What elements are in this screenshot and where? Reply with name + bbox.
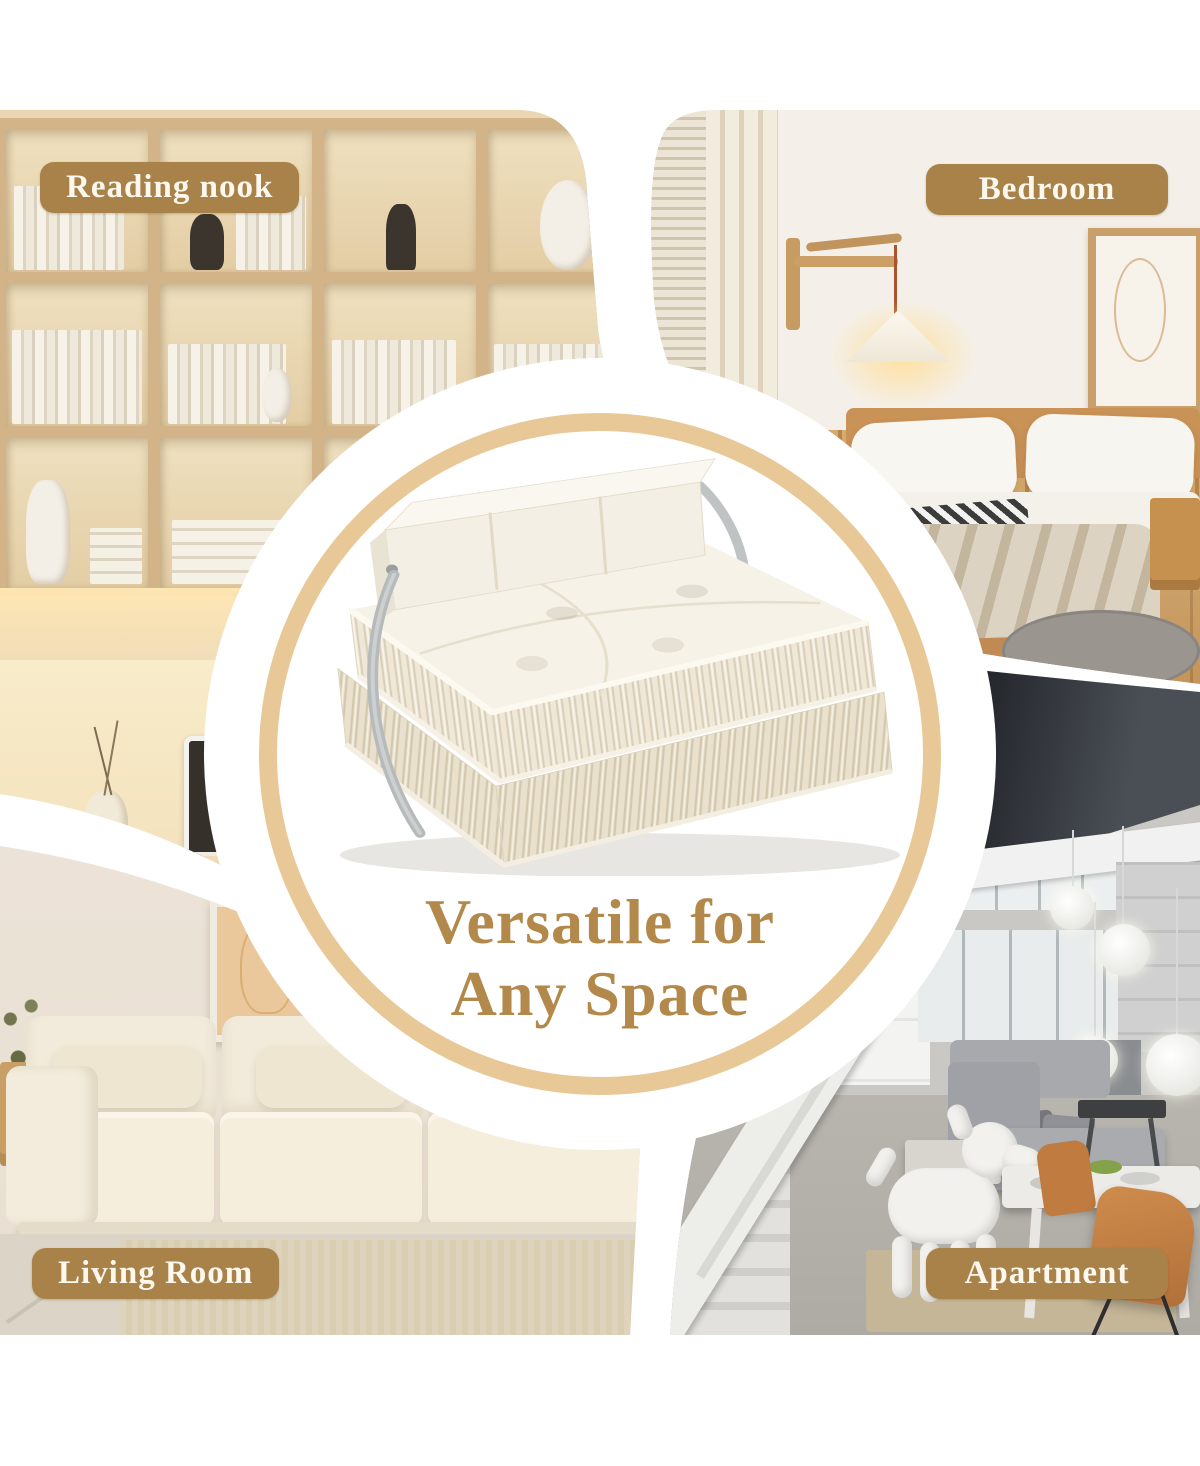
lamp-cord [1122, 826, 1124, 930]
sofa-seat [220, 1112, 422, 1226]
fruit-bowl [1088, 1160, 1122, 1174]
badge-living-room-label: Living Room [58, 1255, 253, 1291]
pendant-globe [1098, 924, 1150, 976]
desk-vase [84, 790, 128, 862]
balloon-dog-leg [892, 1236, 912, 1298]
product-collage: Versatile for Any Space Reading nook Bed… [0, 0, 1200, 1466]
lamp-cord [1094, 902, 1096, 1042]
product-illustration [300, 452, 900, 876]
dark-vase [190, 214, 224, 270]
nightstand-right [1150, 498, 1200, 590]
window-behind-sofa [918, 930, 1118, 1042]
book-stack [90, 528, 142, 584]
sofa-armrest [6, 1066, 98, 1226]
headline-line1: Versatile for [300, 886, 900, 958]
pendant-globe [1050, 886, 1094, 930]
badge-bedroom: Bedroom [926, 164, 1168, 215]
white-vase [26, 480, 70, 584]
badge-bedroom-label: Bedroom [979, 171, 1116, 207]
dining-chair-orange [1035, 1139, 1097, 1218]
books [12, 330, 142, 424]
small-vase [262, 368, 292, 422]
dark-bottle [386, 204, 416, 270]
white-vase [540, 180, 596, 270]
lamp-cord [1176, 888, 1178, 1040]
badge-living-room: Living Room [32, 1248, 279, 1299]
headline-line2: Any Space [300, 958, 900, 1030]
badge-reading-nook-label: Reading nook [66, 169, 273, 205]
pendant-globe [1146, 1034, 1200, 1096]
lamp-cord [1072, 830, 1074, 892]
lamp-wall-mount [786, 238, 800, 330]
badge-reading-nook: Reading nook [40, 162, 299, 213]
balloon-dog-body [888, 1168, 1000, 1244]
lamp-arm [794, 256, 898, 267]
wall-art-doodle [1114, 258, 1166, 362]
plate [1120, 1172, 1160, 1185]
badge-apartment: Apartment [926, 1248, 1168, 1299]
desk-dark [1078, 1100, 1166, 1118]
badge-apartment-label: Apartment [965, 1255, 1130, 1291]
headline: Versatile for Any Space [300, 886, 900, 1030]
